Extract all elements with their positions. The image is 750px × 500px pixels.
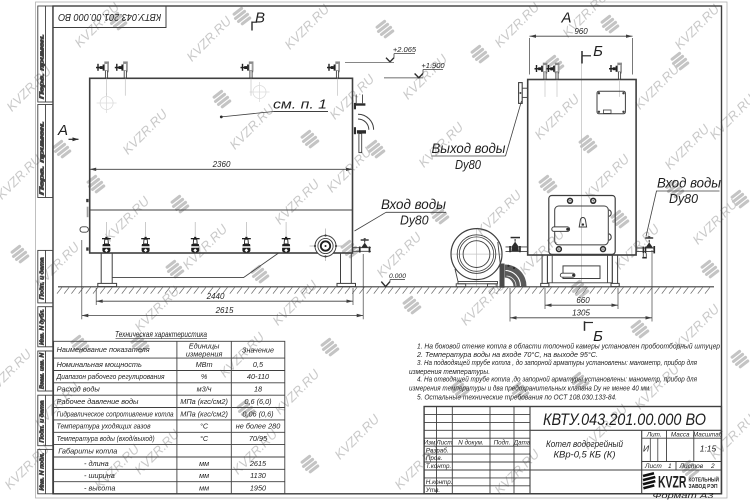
svg-text:Значение: Значение: [242, 346, 274, 355]
svg-text:1305: 1305: [572, 309, 590, 318]
svg-text:Масштаб: Масштаб: [693, 430, 723, 438]
svg-text:мм: мм: [199, 459, 209, 468]
svg-text:А: А: [560, 10, 571, 27]
svg-text:Н.контр.: Н.контр.: [426, 479, 453, 486]
svg-text:Листов: Листов: [679, 463, 704, 470]
svg-text:Перв. примен.: Перв. примен.: [40, 121, 46, 195]
svg-text:Масса: Масса: [671, 431, 690, 438]
svg-text:+2.065: +2.065: [393, 45, 417, 54]
svg-text:%: %: [201, 372, 208, 381]
svg-text:Лист: Лист: [644, 463, 662, 470]
svg-text:Вход воды: Вход воды: [381, 196, 447, 212]
svg-text:18: 18: [254, 385, 263, 394]
svg-text:Инв. N подл.: Инв. N подл.: [40, 453, 46, 491]
svg-text:Т.контр.: Т.контр.: [426, 463, 451, 470]
svg-text:Dy80: Dy80: [400, 213, 429, 228]
svg-text:- ширина: - ширина: [84, 471, 115, 480]
svg-text:КОТЕЛЬНЫЙ: КОТЕЛЬНЫЙ: [689, 475, 720, 483]
svg-text:Взам. инв. N: Взам. инв. N: [40, 353, 46, 389]
svg-text:0,06 (0,6): 0,06 (0,6): [242, 409, 273, 418]
svg-text:МВт: МВт: [196, 360, 213, 369]
svg-text:Изм.: Изм.: [424, 439, 437, 446]
svg-text:Номинальная мощность: Номинальная мощность: [57, 360, 142, 369]
svg-text:3. На подводящей трубе котла: 3. На подводящей трубе котла , до запорн…: [417, 358, 697, 367]
svg-text:МПа (кгс/см2): МПа (кгс/см2): [180, 409, 228, 418]
svg-text:660: 660: [576, 296, 590, 305]
svg-text:Разраб.: Разраб.: [426, 446, 449, 454]
svg-text:40-110: 40-110: [247, 372, 269, 381]
svg-text:КВр-0,5 КБ (К): КВр-0,5 КБ (К): [554, 450, 616, 460]
svg-text:N докум.: N докум.: [458, 438, 483, 446]
svg-text:измерения: измерения: [186, 350, 223, 359]
svg-text:2440: 2440: [206, 292, 225, 301]
svg-text:°С: °С: [200, 434, 209, 443]
svg-text:1130: 1130: [250, 471, 266, 480]
svg-text:Пров.: Пров.: [426, 455, 443, 462]
svg-text:КВТУ.043.201.00.000 ВО: КВТУ.043.201.00.000 ВО: [543, 410, 706, 429]
svg-text:2360: 2360: [212, 160, 231, 169]
svg-text:Подп. и дата: Подп. и дата: [40, 258, 46, 300]
svg-text:1:15: 1:15: [700, 444, 717, 454]
svg-text:Наименование показателя: Наименование показателя: [57, 345, 150, 354]
svg-text:В: В: [255, 10, 265, 27]
svg-text:- высота: - высота: [84, 484, 115, 493]
svg-text:Котел водогрейный: Котел водогрейный: [546, 439, 623, 449]
svg-text:Температура уходящих газов: Температура уходящих газов: [57, 422, 151, 431]
svg-text:1: 1: [668, 463, 672, 470]
svg-text:2615: 2615: [215, 306, 234, 315]
svg-text:+1.900: +1.900: [421, 61, 445, 70]
svg-text:Техническая характеристика: Техническая характеристика: [115, 330, 207, 339]
svg-text:0,6 (6,0): 0,6 (6,0): [244, 397, 271, 406]
svg-text:Гидравлическое сопротивление к: Гидравлическое сопротивление котла: [57, 409, 174, 418]
svg-text:Подп.: Подп.: [494, 438, 511, 446]
svg-text:Вход воды: Вход воды: [657, 175, 722, 191]
svg-text:Dy80: Dy80: [669, 191, 699, 206]
svg-text:см. п. 1: см. п. 1: [273, 97, 327, 112]
svg-text:КВТУ.043.201.00.000 ВО: КВТУ.043.201.00.000 ВО: [58, 11, 161, 23]
svg-text:Температура воды (вход/выход): Температура воды (вход/выход): [57, 434, 155, 443]
svg-text:Дата: Дата: [513, 439, 531, 446]
svg-text:70/95: 70/95: [249, 434, 268, 443]
svg-text:Подп. и дата: Подп. и дата: [40, 401, 46, 443]
svg-text:960: 960: [574, 27, 588, 36]
svg-text:мм: мм: [199, 471, 209, 480]
svg-text:Расход воды: Расход воды: [57, 385, 101, 394]
svg-text:Лит.: Лит.: [646, 431, 662, 438]
svg-text:ЗАВОД РЭП: ЗАВОД РЭП: [689, 484, 718, 490]
svg-text:Выход воды: Выход воды: [432, 140, 507, 156]
svg-text:Диапазон рабочего регулировани: Диапазон рабочего регулирования: [56, 372, 165, 381]
svg-text:мм: мм: [199, 484, 209, 493]
svg-text:Б: Б: [593, 43, 603, 60]
svg-text:Перв. примен.: Перв. примен.: [40, 34, 46, 99]
svg-text:1950: 1950: [250, 484, 266, 493]
svg-text:Лист: Лист: [435, 439, 452, 446]
svg-text:- длина: - длина: [84, 459, 109, 468]
svg-text:не более 280: не более 280: [236, 422, 281, 431]
svg-text:Рабочее давление воды: Рабочее давление воды: [57, 397, 139, 406]
svg-text:Dy80: Dy80: [455, 157, 482, 172]
svg-text:МПа (кгс/см2): МПа (кгс/см2): [180, 397, 228, 406]
svg-text:Габариты котла: Габариты котла: [58, 446, 117, 455]
svg-text:м3/ч: м3/ч: [197, 385, 212, 394]
svg-text:А: А: [57, 122, 68, 139]
svg-text:И: И: [643, 444, 650, 454]
svg-text:0.000: 0.000: [389, 273, 406, 280]
svg-text:Инв. N дубл.: Инв. N дубл.: [40, 309, 46, 345]
svg-text:5. Остальные технические треб: 5. Остальные технические требования по О…: [417, 392, 617, 401]
svg-text:4. На отводящей трубе котла ,: 4. На отводящей трубе котла ,до запорной…: [417, 375, 697, 384]
svg-text:2: 2: [710, 463, 715, 470]
svg-text:Формат А3: Формат А3: [653, 491, 715, 500]
svg-text:0,5: 0,5: [253, 360, 264, 369]
svg-text:KVZR: KVZR: [658, 473, 687, 492]
svg-text:2615: 2615: [249, 459, 267, 468]
svg-text:°С: °С: [200, 422, 209, 431]
svg-text:Утв.: Утв.: [425, 487, 440, 494]
